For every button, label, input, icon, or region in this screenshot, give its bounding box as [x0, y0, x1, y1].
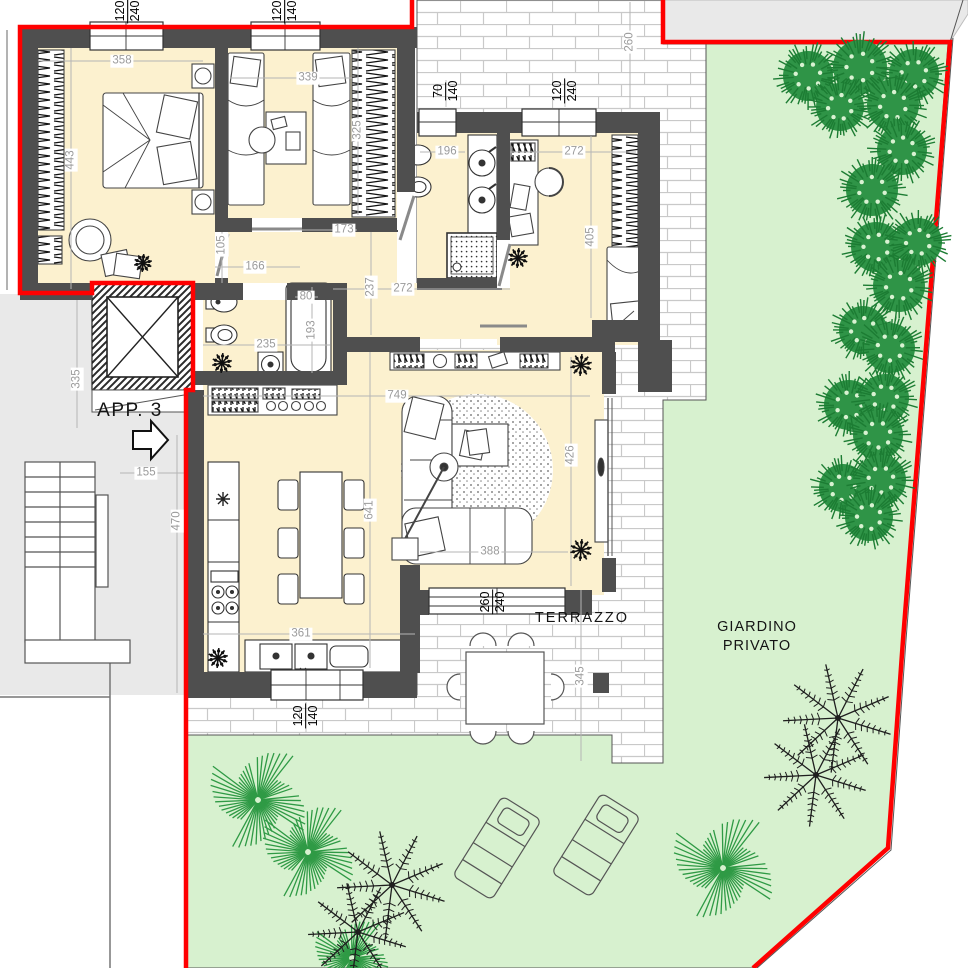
floor-plan-drawing: 3584433393251051661731962724052372722358… — [0, 0, 968, 968]
window — [271, 670, 363, 700]
elevator — [92, 283, 193, 412]
window — [522, 109, 596, 136]
garden-label-line2: PRIVATO — [717, 637, 797, 656]
chair — [278, 574, 298, 604]
dining-table — [278, 472, 364, 604]
kitchen-sink-counter — [245, 640, 417, 674]
window — [419, 109, 456, 136]
chair — [344, 528, 364, 558]
cooktop — [211, 571, 238, 614]
fridge-snowflake-icon — [216, 492, 230, 506]
sideboard — [390, 352, 560, 370]
terrace-sliding-door — [595, 420, 608, 542]
shower — [447, 233, 497, 278]
chair — [344, 480, 364, 510]
chair — [344, 574, 364, 604]
chair — [278, 528, 298, 558]
terrace-label: TERRAZZO — [535, 610, 629, 626]
garden-label: GIARDINO PRIVATO — [717, 618, 797, 656]
chair — [278, 480, 298, 510]
desk-chair — [249, 127, 275, 153]
plan-canvas — [0, 0, 968, 968]
console-shelf — [208, 385, 337, 415]
coffee-table — [452, 424, 508, 466]
double-bed — [103, 93, 203, 188]
apartment-title: APP. 3 — [97, 400, 163, 422]
toilet — [206, 325, 237, 345]
garden-label-line1: GIARDINO — [717, 618, 797, 637]
